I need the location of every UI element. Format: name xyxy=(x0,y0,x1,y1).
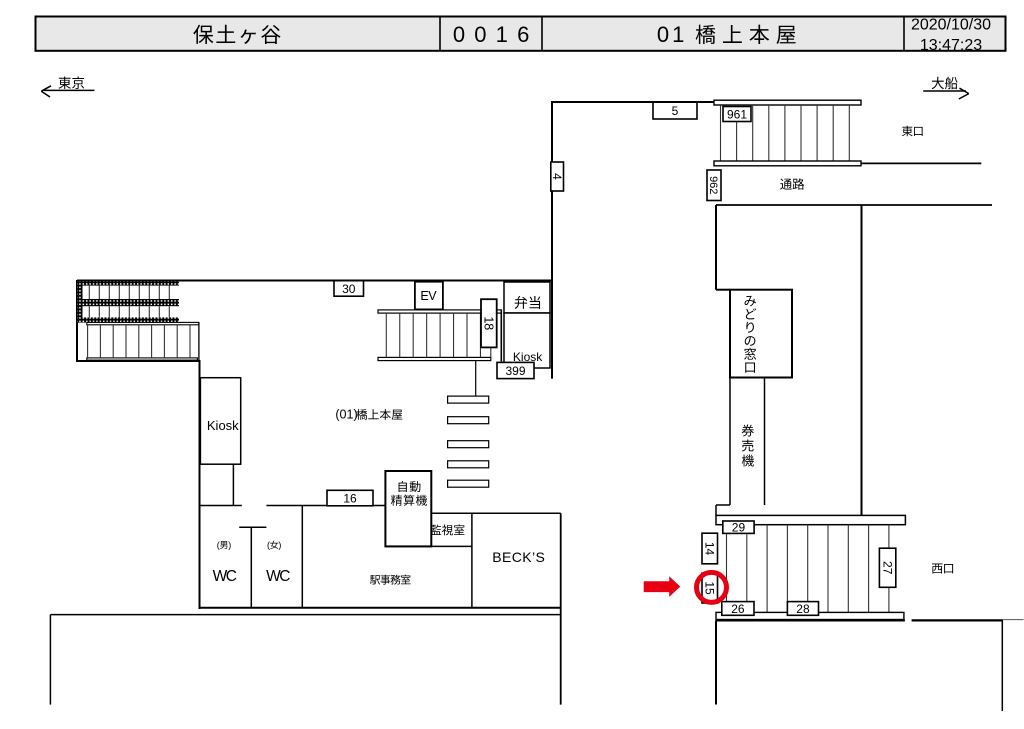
svg-text:6: 6 xyxy=(517,22,529,47)
svg-text:18: 18 xyxy=(481,316,495,330)
svg-text:1: 1 xyxy=(496,22,508,47)
svg-text:399: 399 xyxy=(505,364,525,378)
svg-text:0: 0 xyxy=(657,22,669,47)
svg-text:0: 0 xyxy=(453,22,465,47)
svg-text:BECK’S: BECK’S xyxy=(492,549,545,565)
svg-text:(: ( xyxy=(217,540,220,550)
svg-text:0: 0 xyxy=(474,22,486,47)
svg-text:15: 15 xyxy=(703,581,717,595)
svg-text:EV: EV xyxy=(420,289,437,303)
svg-text:29: 29 xyxy=(732,521,746,535)
svg-text:26: 26 xyxy=(731,602,745,616)
svg-text:961: 961 xyxy=(727,107,747,121)
svg-text:): ) xyxy=(278,540,281,550)
svg-text:1: 1 xyxy=(672,22,684,47)
svg-text:(: ( xyxy=(267,540,270,550)
svg-text:WC: WC xyxy=(213,568,237,585)
svg-text:4: 4 xyxy=(550,173,564,180)
svg-text:14: 14 xyxy=(703,542,717,556)
svg-text:Kiosk: Kiosk xyxy=(207,418,239,433)
svg-text:30: 30 xyxy=(342,282,356,296)
svg-text:13:47:23: 13:47:23 xyxy=(920,37,982,54)
svg-text:): ) xyxy=(228,540,231,550)
svg-text:962: 962 xyxy=(707,176,719,194)
svg-text:5: 5 xyxy=(672,104,679,118)
svg-text:(01): (01) xyxy=(335,408,357,422)
svg-text:16: 16 xyxy=(343,491,357,505)
svg-text:WC: WC xyxy=(266,568,290,585)
svg-text:28: 28 xyxy=(796,602,810,616)
svg-text:2020/10/30: 2020/10/30 xyxy=(911,17,991,34)
svg-text:27: 27 xyxy=(880,561,894,575)
